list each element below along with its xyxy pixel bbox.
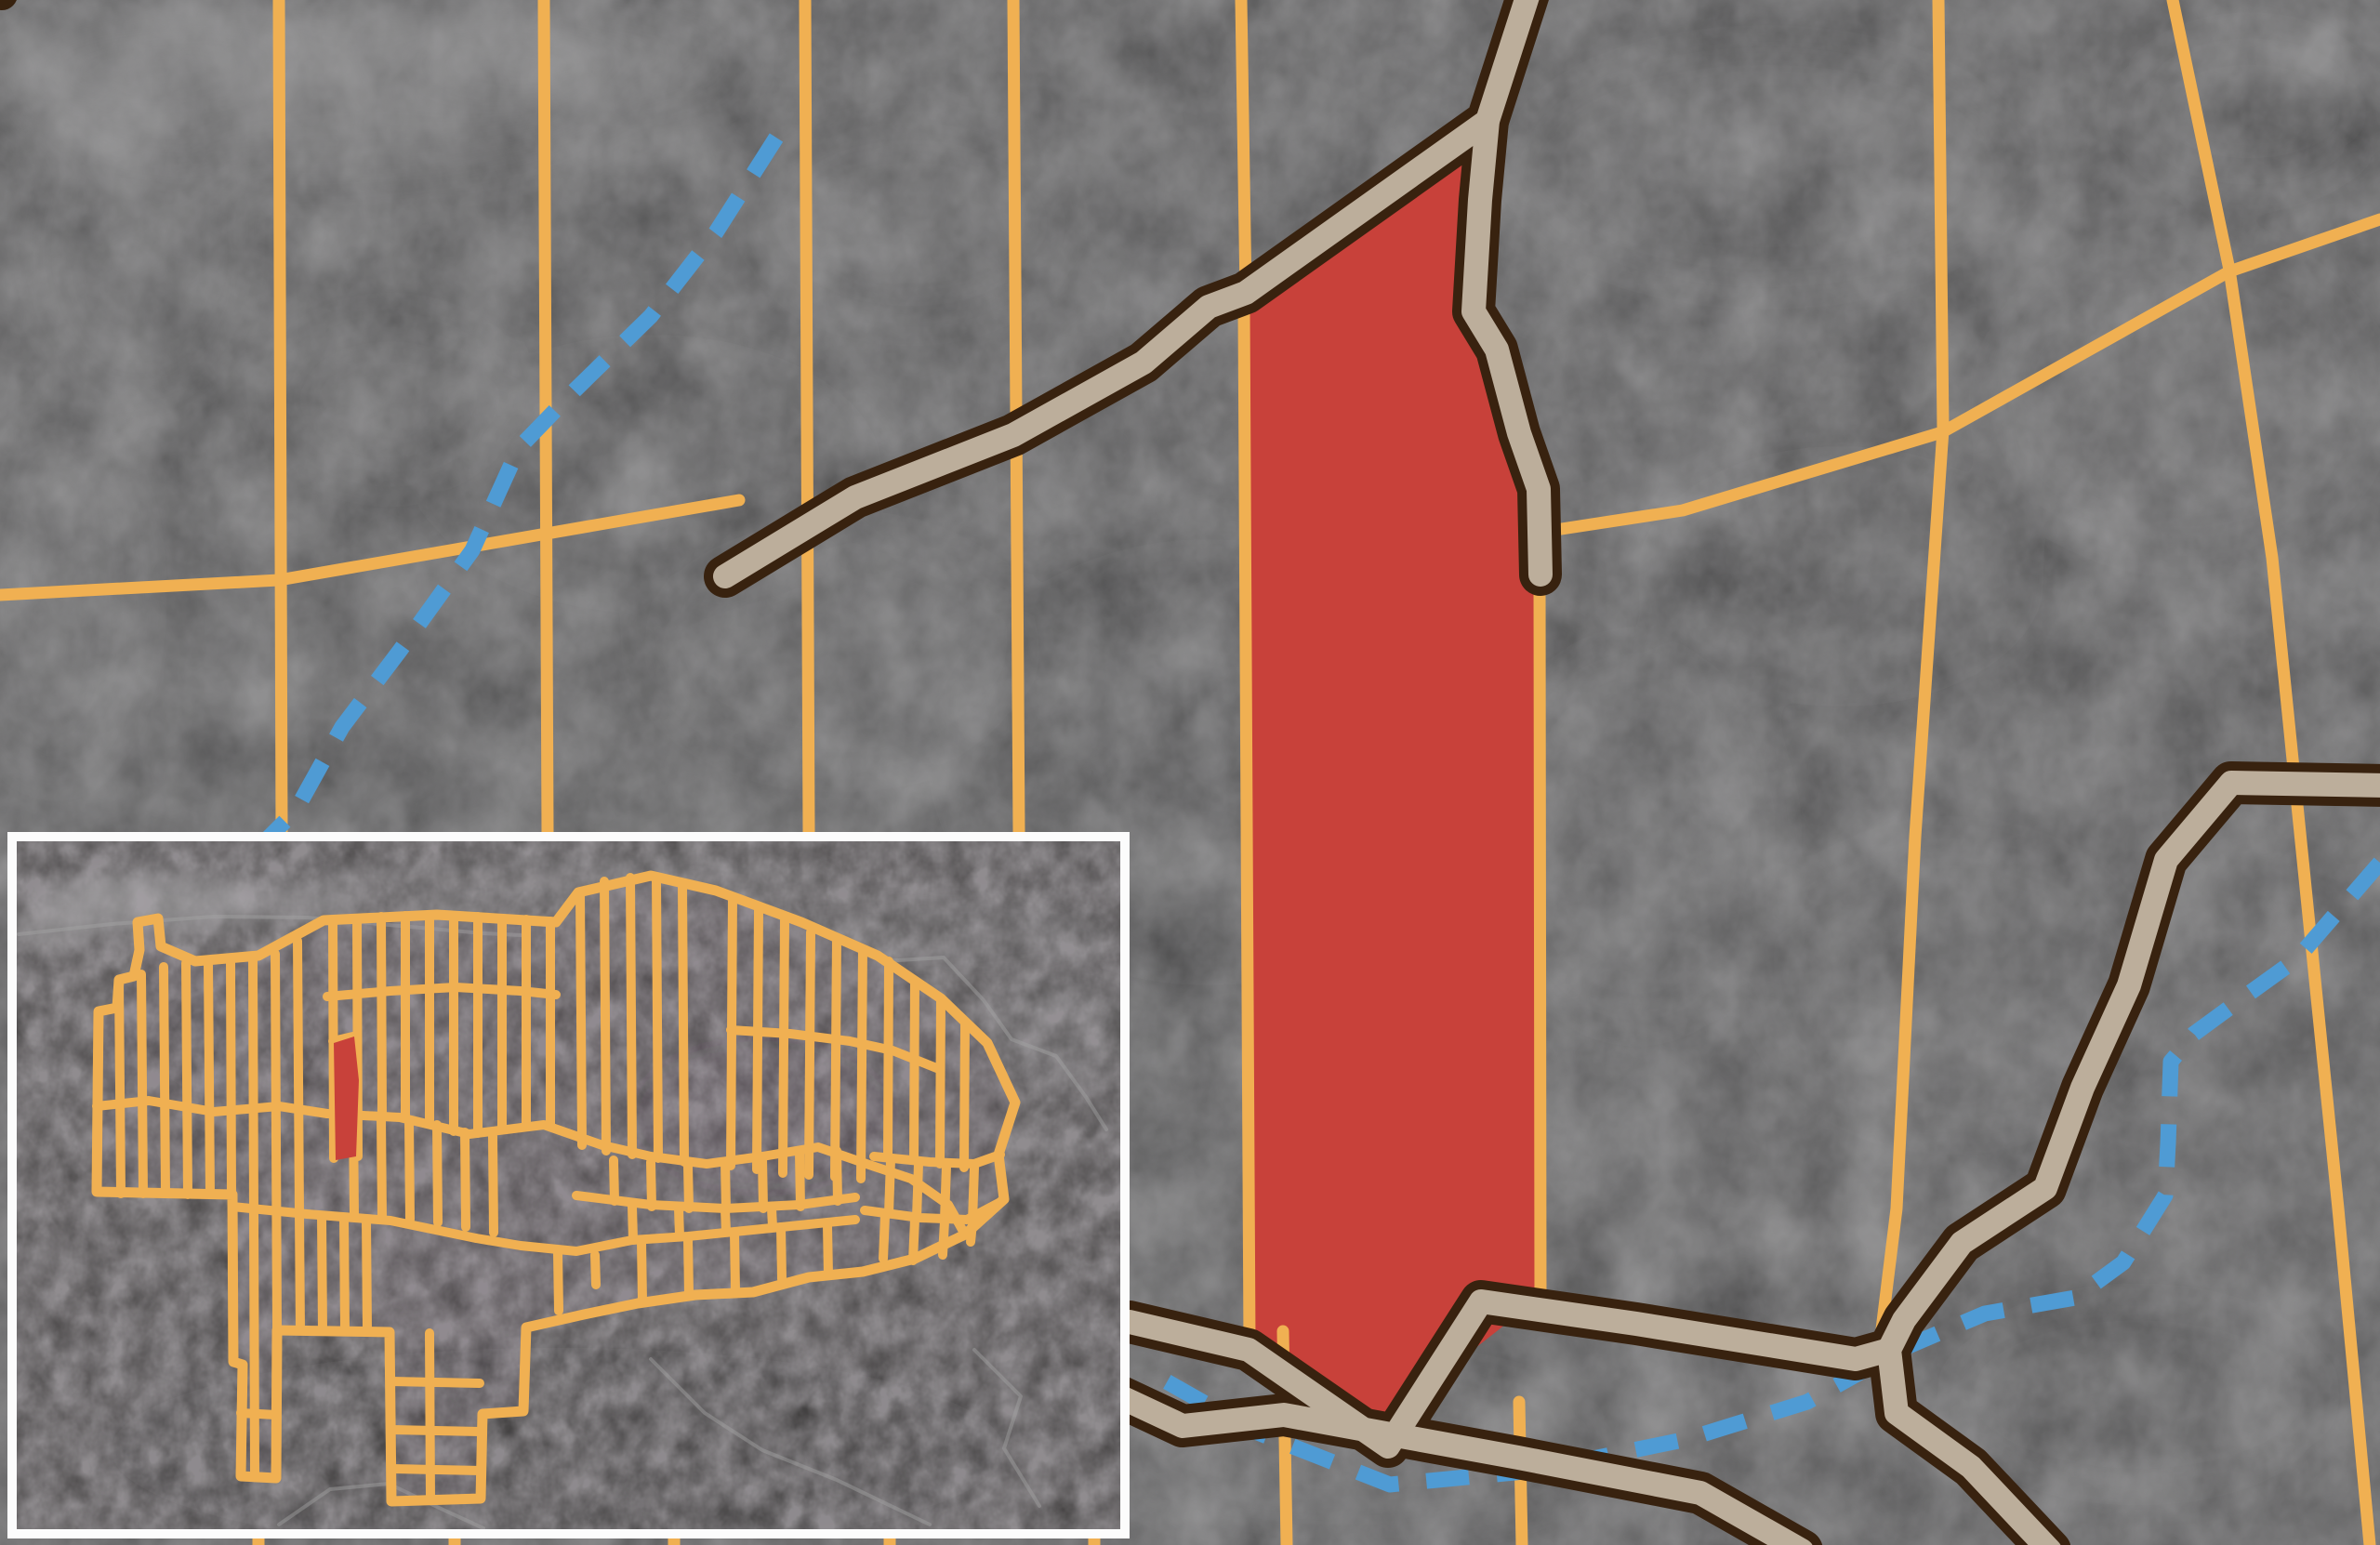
inset-parcel-line (837, 1151, 838, 1201)
inset-parcel-line (972, 1168, 974, 1221)
inset-parcel-line (392, 1469, 481, 1471)
inset-parcel-line (381, 917, 382, 1117)
inset-parcel-line (883, 1216, 885, 1259)
inset-parcel-line (757, 909, 759, 1169)
inset-parcel-line (725, 1210, 726, 1231)
inset-parcel-line (888, 961, 889, 1156)
parcel-boundary-line (805, 0, 809, 832)
map-viewport[interactable] (0, 0, 2380, 1545)
inset-content (7, 841, 1157, 1545)
inset-parcel-line (835, 938, 837, 1177)
inset-parcel-line (800, 1153, 800, 1207)
inset-parcel-line (809, 932, 811, 1175)
inset-parcel-line (682, 885, 684, 1162)
inset-parcel-line (772, 1208, 773, 1227)
inset-parcel-line (430, 1333, 430, 1499)
inset-parcel-line (253, 957, 255, 1474)
inset-parcel-line (164, 967, 165, 1194)
inset-parcel-line (465, 1132, 466, 1227)
inset-parcel-line (391, 1381, 480, 1383)
inset-parcel-line (558, 1253, 559, 1311)
inset-parcel-line (437, 1125, 438, 1222)
inset-parcel-line (725, 1162, 726, 1210)
inset-parcel-line (656, 879, 658, 1158)
inset-parcel-line (943, 1221, 945, 1255)
inset-parcel-line (231, 961, 231, 1195)
inset-parcel-line (381, 1117, 382, 1218)
parcel-boundary-line (1244, 307, 1249, 1343)
parcel-boundary-line (1540, 578, 1540, 1303)
inset-parcel-line (580, 894, 582, 1145)
inset-parcel-line (688, 1166, 689, 1208)
inset-parcel-line (614, 1160, 615, 1201)
inset-map[interactable] (7, 832, 1157, 1545)
inset-parcel-line (141, 974, 143, 1194)
inset-parcel-line (299, 1214, 300, 1330)
map-canvas[interactable] (0, 0, 2380, 1545)
inset-parcel-line (344, 1218, 345, 1331)
inset-parcel-line (734, 1233, 735, 1292)
inset-parcel-line (679, 1208, 680, 1236)
parcel-boundary-line (279, 0, 282, 832)
inset-parcel-line (940, 998, 941, 1164)
inset-parcel-line (630, 878, 632, 1155)
inset-parcel-line (186, 963, 188, 1195)
inset-parcel-line (241, 1413, 276, 1415)
inset-parcel-line (762, 1158, 763, 1208)
inset-parcel-line (783, 920, 785, 1173)
inset-parcel-line (366, 1220, 367, 1331)
inset-selected-parcel[interactable] (334, 1037, 359, 1160)
inset-parcel-line (391, 1430, 480, 1432)
inset-parcel-line (945, 1166, 946, 1220)
inset-parcel-line (297, 941, 299, 1214)
inset-parcel-line (641, 1242, 642, 1301)
inset-parcel-line (632, 1207, 633, 1240)
inset-parcel-line (275, 954, 277, 1329)
inset-parcel-line (827, 1225, 828, 1275)
inset-parcel-line (604, 881, 606, 1151)
inset-parcel-line (917, 1164, 919, 1218)
inset-parcel-line (971, 1223, 972, 1242)
inset-parcel-line (119, 982, 121, 1194)
inset-parcel-line (595, 1255, 596, 1285)
inset-parcel-line (889, 1160, 891, 1214)
inset-parcel-line (913, 1220, 915, 1261)
inset-parcel-line (914, 981, 915, 1160)
inset-parcel-line (493, 1136, 494, 1233)
inset-parcel-line (208, 965, 210, 1195)
inset-parcel-line (781, 1227, 782, 1279)
inset-parcel-line (964, 1023, 965, 1168)
parcel-boundary-line (1241, 0, 1246, 294)
inset-parcel-line (688, 1238, 689, 1294)
inset-parcel-line (322, 1216, 323, 1331)
inset-parcel-line (861, 949, 863, 1179)
inset-parcel-line (409, 1120, 410, 1220)
inset-parcel-line (651, 1162, 652, 1207)
